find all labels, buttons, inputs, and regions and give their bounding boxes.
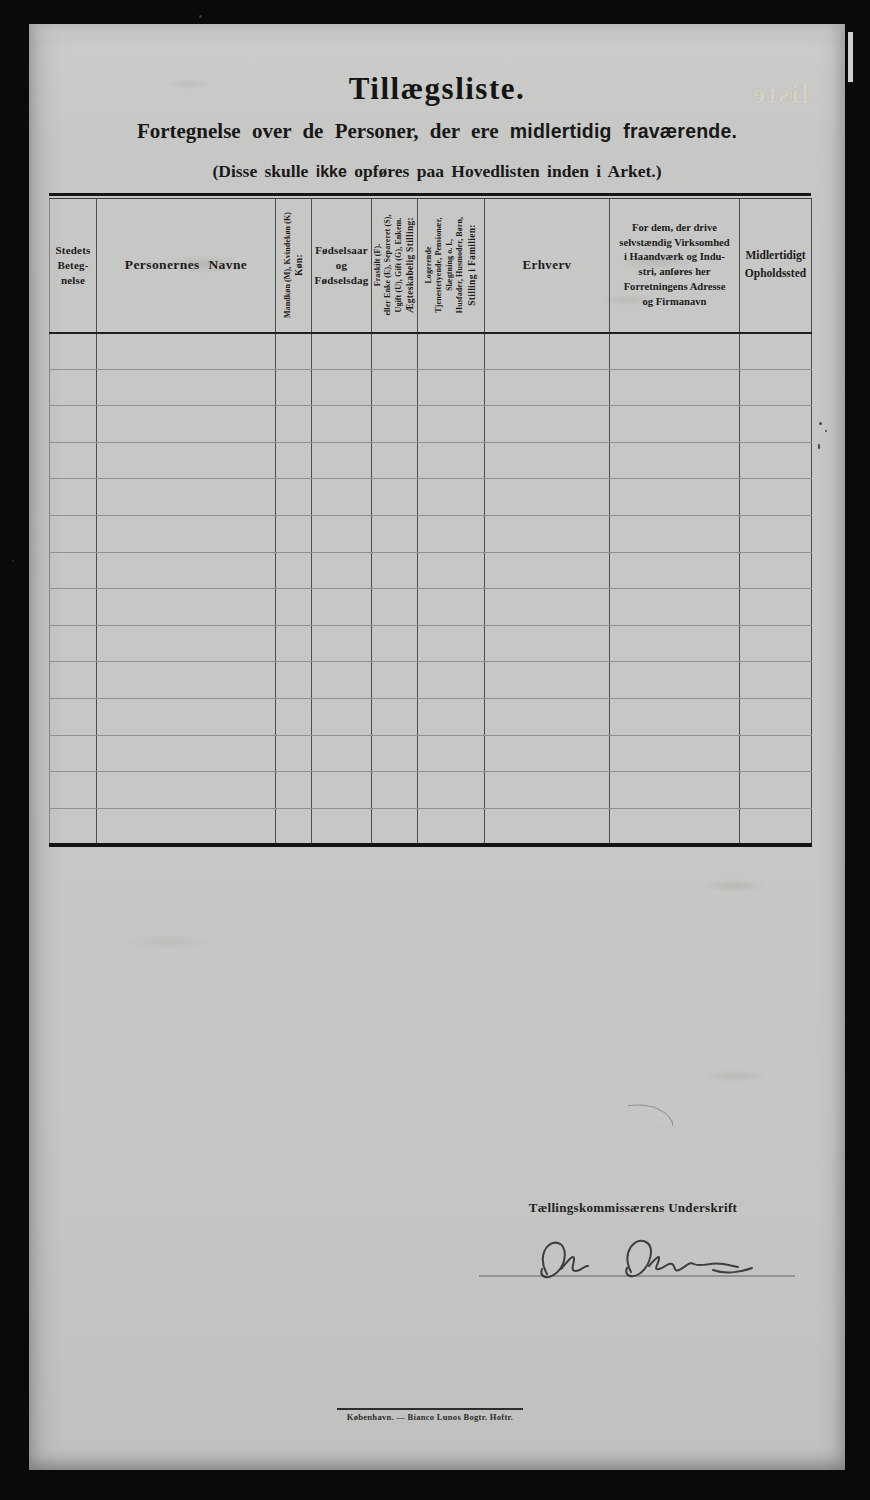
table-cell-virksomhed (610, 479, 740, 516)
table-cell-opholdssted (740, 442, 812, 479)
col-header-virksomhed: For dem, der drive selvstændig Virksomhe… (610, 199, 740, 333)
scan-background: { "page": { "title": "Tillægsliste.", "s… (0, 0, 870, 1500)
table-cell-virksomhed (610, 552, 740, 589)
table-cell-kon (276, 479, 312, 516)
table-cell-stilling-i-familien (418, 406, 485, 443)
table-cell-stedets-betegnelse (50, 369, 97, 406)
table-cell-kon (276, 442, 312, 479)
table-cell-stilling-i-familien (418, 333, 485, 370)
header-line: Opholdssted (740, 265, 811, 283)
table-cell-fodselsaar (312, 515, 372, 552)
table-cell-personernes-navne (97, 589, 276, 626)
table-cell-erhverv (485, 369, 610, 406)
table-row (50, 515, 812, 552)
header-line: For dem, der drive (610, 221, 739, 236)
table-cell-opholdssted (740, 772, 812, 809)
printer-imprint: København. — Bianco Lunos Bogtr. Hoftr. (312, 1412, 548, 1422)
table-cell-erhverv (485, 735, 610, 772)
table-cell-erhverv (485, 808, 610, 845)
note-text-suffix: opføres paa Hovedlisten inden i Arket.) (347, 161, 662, 181)
header-line: Beteg- (50, 258, 96, 273)
subtitle-text: Fortegnelse over de Personer, der ere (137, 119, 510, 143)
dust-speck (12, 560, 14, 562)
table-cell-stedets-betegnelse (50, 772, 97, 809)
header-line: og Firmanavn (610, 295, 739, 310)
table-row (50, 552, 812, 589)
table-cell-fodselsaar (312, 698, 372, 735)
stray-pen-mark (627, 1099, 673, 1132)
table-cell-aegteskabelig-stilling (372, 369, 418, 406)
header-line-rotated: Logerende (424, 247, 434, 284)
table-cell-personernes-navne (97, 625, 276, 662)
header-line: og (312, 258, 371, 273)
table-body (50, 333, 812, 845)
table-cell-opholdssted (740, 369, 812, 406)
table-cell-fodselsaar (312, 808, 372, 845)
table-cell-fodselsaar (312, 589, 372, 626)
table-cell-stilling-i-familien (418, 625, 485, 662)
table-cell-personernes-navne (97, 479, 276, 516)
table-cell-erhverv (485, 406, 610, 443)
subtitle-bold-text: midlertidig fraværende. (510, 120, 737, 142)
table-header-row: Stedets Beteg- nelse Personernes Navne K… (50, 199, 812, 333)
table-cell-stedets-betegnelse (50, 442, 97, 479)
header-line-rotated: Slægtning o. l., (445, 239, 455, 291)
table-cell-kon (276, 662, 312, 699)
table-cell-stedets-betegnelse (50, 625, 97, 662)
table-cell-kon (276, 625, 312, 662)
paper-sheet: liste Tillægsliste. Fortegnelse over de … (29, 24, 845, 1470)
header-line-rotated: Ægteskabelig Stilling: (404, 217, 416, 313)
page-title: Tillægsliste. (29, 70, 845, 108)
header-line: nelse (50, 273, 96, 288)
table-cell-opholdssted (740, 515, 812, 552)
table-cell-virksomhed (610, 515, 740, 552)
table-cell-erhverv (485, 625, 610, 662)
table-cell-stedets-betegnelse (50, 589, 97, 626)
col-header-stedets-betegnelse: Stedets Beteg- nelse (50, 199, 97, 333)
table-cell-kon (276, 808, 312, 845)
table-cell-opholdssted (740, 662, 812, 699)
table-row (50, 625, 812, 662)
table-cell-personernes-navne (97, 735, 276, 772)
page-subtitle: Fortegnelse over de Personer, der ere mi… (29, 115, 845, 147)
table-cell-fodselsaar (312, 333, 372, 370)
signature-handwriting (527, 1232, 759, 1296)
header-line: Stedets (50, 243, 96, 258)
table-cell-aegteskabelig-stilling (372, 552, 418, 589)
table-row (50, 442, 812, 479)
table-cell-stilling-i-familien (418, 515, 485, 552)
table-cell-aegteskabelig-stilling (372, 442, 418, 479)
table-cell-opholdssted (740, 625, 812, 662)
table-cell-aegteskabelig-stilling (372, 625, 418, 662)
col-header-aegteskabelig-stilling: Ægteskabelig Stilling: Ugift (U), Gift (… (372, 199, 418, 333)
table-cell-virksomhed (610, 406, 740, 443)
table-cell-erhverv (485, 552, 610, 589)
table-cell-stedets-betegnelse (50, 662, 97, 699)
header-line-rotated: Fraskilt (F). (373, 244, 383, 287)
scan-edge-artifact (848, 32, 853, 82)
table-cell-erhverv (485, 479, 610, 516)
table-cell-aegteskabelig-stilling (372, 735, 418, 772)
table-cell-personernes-navne (97, 662, 276, 699)
col-header-personernes-navne: Personernes Navne (97, 199, 276, 333)
table-cell-kon (276, 772, 312, 809)
table-cell-opholdssted (740, 735, 812, 772)
table-cell-opholdssted (740, 552, 812, 589)
header-line: Personernes Navne (97, 256, 275, 274)
table-row (50, 369, 812, 406)
col-header-erhverv: Erhverv (485, 199, 610, 333)
table-cell-virksomhed (610, 735, 740, 772)
table-cell-stilling-i-familien (418, 369, 485, 406)
table-cell-personernes-navne (97, 808, 276, 845)
col-header-stilling-i-familien: Stilling i Familien: Husfader, Husmoder,… (418, 199, 485, 333)
table-cell-fodselsaar (312, 735, 372, 772)
table-row (50, 662, 812, 699)
table-cell-kon (276, 369, 312, 406)
table-cell-erhverv (485, 662, 610, 699)
table-cell-erhverv (485, 442, 610, 479)
table-cell-stilling-i-familien (418, 808, 485, 845)
imprint-rule (337, 1408, 523, 1410)
table-cell-virksomhed (610, 442, 740, 479)
ink-speck (819, 422, 822, 425)
ink-speck (818, 444, 820, 449)
table-row (50, 406, 812, 443)
table-cell-virksomhed (610, 772, 740, 809)
table-cell-stilling-i-familien (418, 772, 485, 809)
page-note: (Disse skulle ikke opføres paa Hovedlist… (29, 158, 845, 185)
table-cell-fodselsaar (312, 442, 372, 479)
table-cell-aegteskabelig-stilling (372, 808, 418, 845)
header-line-rotated: Stilling i Familien: (466, 225, 478, 306)
table-cell-kon (276, 589, 312, 626)
table-cell-virksomhed (610, 589, 740, 626)
table-cell-stedets-betegnelse (50, 552, 97, 589)
table-cell-aegteskabelig-stilling (372, 589, 418, 626)
table-cell-stilling-i-familien (418, 698, 485, 735)
table-cell-kon (276, 406, 312, 443)
table-cell-aegteskabelig-stilling (372, 772, 418, 809)
table-cell-stilling-i-familien (418, 552, 485, 589)
header-line: Fødselsdag (312, 273, 371, 288)
table-cell-personernes-navne (97, 333, 276, 370)
table-cell-erhverv (485, 515, 610, 552)
table-cell-personernes-navne (97, 698, 276, 735)
table-cell-stedets-betegnelse (50, 479, 97, 516)
table-cell-kon (276, 515, 312, 552)
table-row (50, 698, 812, 735)
table-cell-fodselsaar (312, 772, 372, 809)
table-cell-aegteskabelig-stilling (372, 662, 418, 699)
col-header-fodselsaar: Fødselsaar og Fødselsdag (312, 199, 372, 333)
table-cell-fodselsaar (312, 479, 372, 516)
header-line-rotated: Ugift (U), Gift (G), Enkem. (394, 218, 404, 313)
table-cell-fodselsaar (312, 552, 372, 589)
table-cell-erhverv (485, 589, 610, 626)
note-text-prefix: (Disse skulle (212, 161, 315, 181)
table-cell-erhverv (485, 698, 610, 735)
table-cell-stedets-betegnelse (50, 333, 97, 370)
table-cell-aegteskabelig-stilling (372, 515, 418, 552)
table-cell-stedets-betegnelse (50, 515, 97, 552)
table-cell-kon (276, 333, 312, 370)
table-cell-virksomhed (610, 808, 740, 845)
table-cell-opholdssted (740, 333, 812, 370)
table-cell-personernes-navne (97, 406, 276, 443)
table-cell-erhverv (485, 772, 610, 809)
table-cell-stilling-i-familien (418, 589, 485, 626)
table-cell-personernes-navne (97, 369, 276, 406)
header-line-rotated: eller Enke (E), Separeret (S), (383, 215, 393, 316)
table-cell-aegteskabelig-stilling (372, 479, 418, 516)
dust-speck (199, 15, 202, 18)
col-header-kon: Køn: Mandkøn (M), Kvindekøn (K) (276, 199, 312, 333)
census-table-zone: Stedets Beteg- nelse Personernes Navne K… (49, 193, 811, 847)
table-cell-aegteskabelig-stilling (372, 698, 418, 735)
header-line-rotated: Tjenestetyende, Pensionær, (434, 218, 444, 313)
note-bold-text: ikke (316, 163, 347, 180)
table-cell-aegteskabelig-stilling (372, 406, 418, 443)
header-line: i Haandværk og Indu- (610, 250, 739, 265)
table-row (50, 479, 812, 516)
header-line-rotated: Husfader, Husmoder, Børn, (455, 217, 465, 313)
table-cell-stedets-betegnelse (50, 698, 97, 735)
table-cell-personernes-navne (97, 442, 276, 479)
table-cell-fodselsaar (312, 406, 372, 443)
table-row (50, 772, 812, 809)
table-cell-personernes-navne (97, 772, 276, 809)
table-cell-stilling-i-familien (418, 735, 485, 772)
table-cell-stilling-i-familien (418, 442, 485, 479)
table-cell-stedets-betegnelse (50, 808, 97, 845)
header-line: selvstændig Virksomhed (610, 236, 739, 251)
table-cell-fodselsaar (312, 662, 372, 699)
col-header-opholdssted: Midlertidigt Opholdssted (740, 199, 812, 333)
table-cell-opholdssted (740, 698, 812, 735)
table-cell-stilling-i-familien (418, 662, 485, 699)
signature-label: Tællingskommissærens Underskrift (498, 1200, 768, 1216)
table-cell-stedets-betegnelse (50, 735, 97, 772)
table-cell-virksomhed (610, 662, 740, 699)
header-line: Forretningens Adresse (610, 280, 739, 295)
table-row (50, 808, 812, 845)
table-row (50, 735, 812, 772)
table-cell-personernes-navne (97, 515, 276, 552)
table-cell-virksomhed (610, 333, 740, 370)
header-line: Midlertidigt (740, 247, 811, 265)
table-cell-stilling-i-familien (418, 479, 485, 516)
table-cell-kon (276, 698, 312, 735)
header-line: Fødselsaar (312, 243, 371, 258)
table-cell-opholdssted (740, 589, 812, 626)
header-line: Erhverv (485, 256, 609, 274)
table-cell-stedets-betegnelse (50, 406, 97, 443)
table-cell-opholdssted (740, 479, 812, 516)
table-cell-fodselsaar (312, 369, 372, 406)
table-cell-opholdssted (740, 808, 812, 845)
table-cell-virksomhed (610, 625, 740, 662)
table-cell-fodselsaar (312, 625, 372, 662)
table-cell-kon (276, 552, 312, 589)
ink-speck (825, 430, 827, 432)
header-line-rotated: Køn: (293, 254, 305, 276)
table-cell-personernes-navne (97, 552, 276, 589)
header-line: stri, anføres her (610, 265, 739, 280)
table-cell-aegteskabelig-stilling (372, 333, 418, 370)
header-line-rotated: Mandkøn (M), Kvindekøn (K) (282, 212, 292, 318)
table-cell-kon (276, 735, 312, 772)
table-row (50, 589, 812, 626)
census-table: Stedets Beteg- nelse Personernes Navne K… (49, 198, 812, 847)
table-cell-virksomhed (610, 698, 740, 735)
table-cell-opholdssted (740, 406, 812, 443)
table-row (50, 333, 812, 370)
table-cell-virksomhed (610, 369, 740, 406)
table-cell-erhverv (485, 333, 610, 370)
